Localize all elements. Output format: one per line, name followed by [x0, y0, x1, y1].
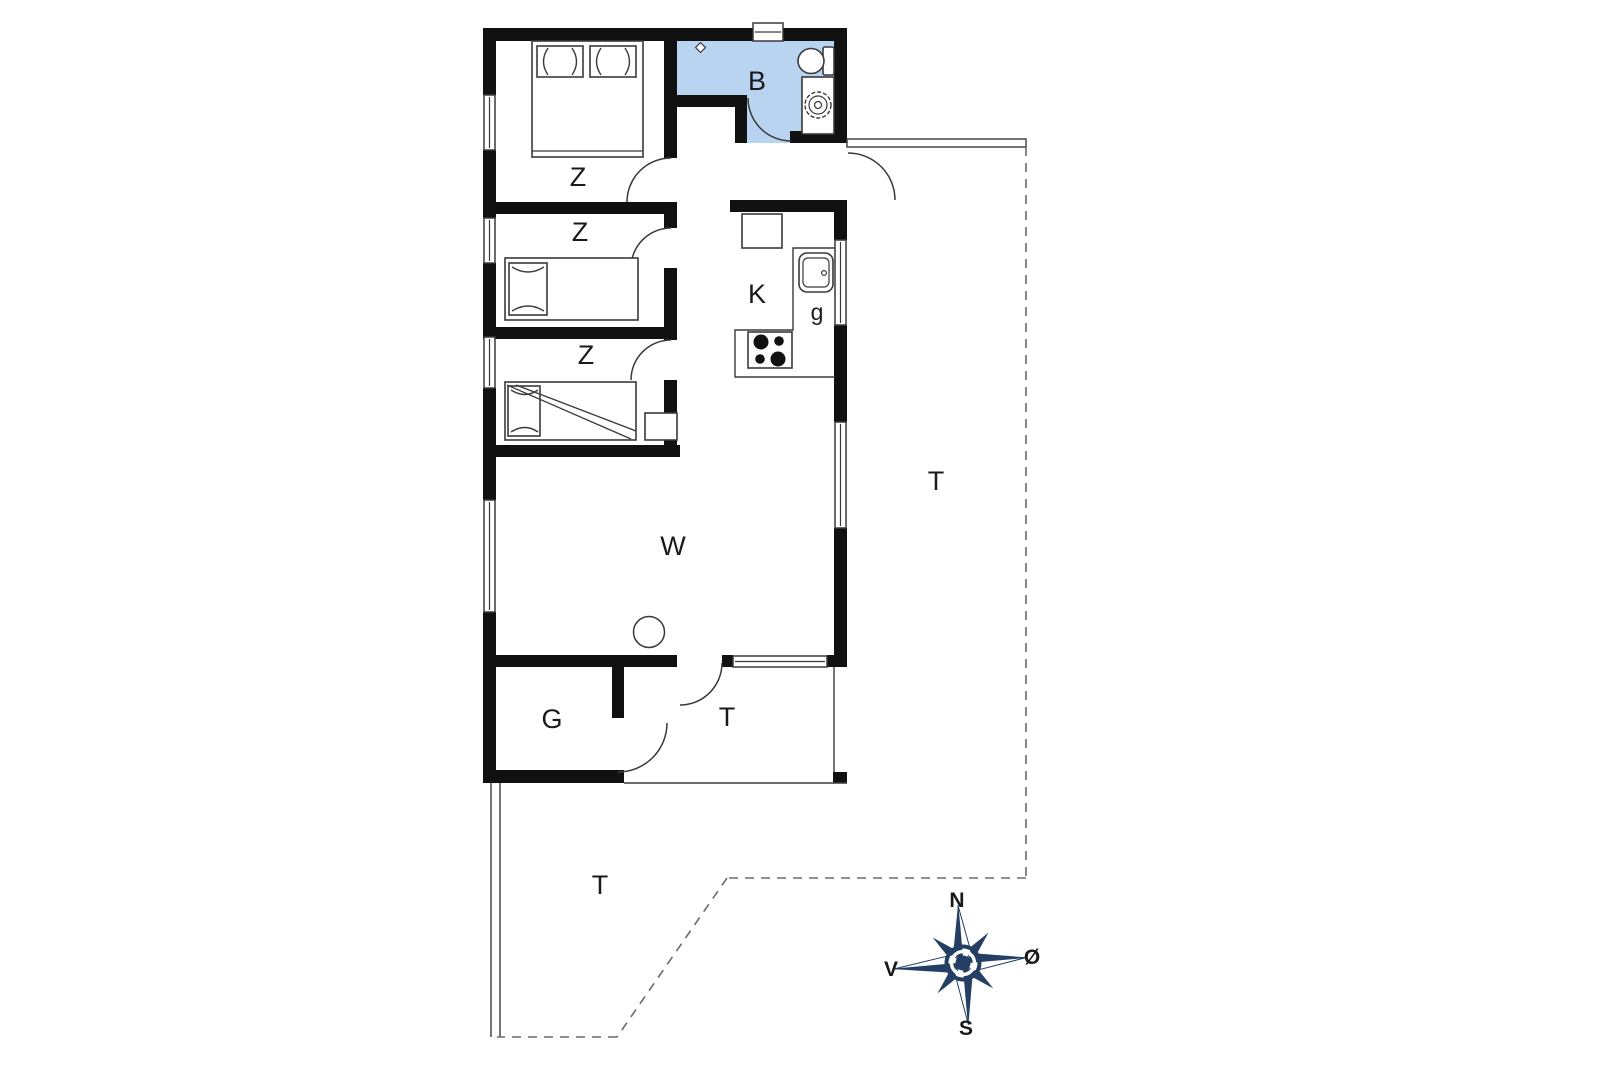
- pillow: [508, 386, 540, 436]
- wall-right: [834, 28, 847, 143]
- kitchen-cabinet: [742, 214, 782, 248]
- wall-top: [483, 28, 753, 41]
- label-bedroom3: Z: [578, 340, 595, 370]
- window-living-east: [835, 422, 846, 528]
- wall-left: [483, 612, 496, 783]
- door-bedroom3: [631, 340, 671, 380]
- label-terrace-inner: T: [719, 702, 736, 732]
- wall-bath-bottom-left: [664, 95, 737, 107]
- terrace-post: [833, 772, 847, 783]
- label-bedroom1: Z: [570, 162, 587, 192]
- compass-label-east: Ø: [1024, 946, 1040, 969]
- kitchen-sink: [799, 253, 833, 292]
- stove-burner: [754, 335, 769, 350]
- door-entrance-east: [848, 153, 895, 200]
- window-bathroom: [753, 23, 783, 41]
- window-bedroom1: [484, 95, 495, 150]
- wall-corner-post: [827, 655, 847, 667]
- boundary-diagonal: [617, 878, 727, 1037]
- compass-label-north: N: [949, 889, 964, 912]
- door-storage: [618, 723, 667, 772]
- door-living-terrace: [680, 663, 722, 705]
- label-kitchen-sink: g: [811, 299, 824, 325]
- wall-bed2-bed3: [483, 327, 677, 339]
- wall-right: [834, 528, 847, 667]
- window-bedroom2: [484, 218, 495, 263]
- window-living: [484, 500, 495, 612]
- terrace-east-edge: [847, 139, 1026, 147]
- door-bedroom1: [627, 158, 671, 202]
- stove-burner: [774, 336, 784, 346]
- label-terrace-south: T: [592, 870, 609, 900]
- wall-bath-jog: [735, 95, 747, 143]
- wall-living-bottom: [483, 655, 677, 667]
- wall-left: [483, 263, 496, 337]
- wall-bed3-living: [483, 445, 680, 457]
- toilet-bowl: [798, 49, 824, 74]
- compass-rose: N S V Ø: [884, 889, 1040, 1040]
- stove: [748, 332, 792, 368]
- wall-storage-right: [612, 655, 624, 718]
- wall-left: [483, 388, 496, 500]
- bedroom-furniture: [505, 41, 677, 440]
- label-storage: G: [541, 704, 562, 734]
- label-living-room: W: [660, 531, 686, 561]
- pillow: [509, 263, 547, 315]
- label-bathroom: B: [748, 66, 766, 96]
- wall-right: [834, 325, 847, 422]
- wall-bed1-bed2: [483, 202, 677, 214]
- label-bedroom2: Z: [572, 217, 589, 247]
- nightstand: [645, 413, 677, 440]
- floorplan-drawing: Z Z Z B K g W G T T T: [0, 0, 1600, 1067]
- wall-kitchen-top: [730, 200, 847, 212]
- wall-living-bottom-stub: [722, 655, 733, 667]
- stove-burner: [771, 352, 786, 367]
- compass-label-west: V: [884, 958, 898, 981]
- window-bedroom3: [484, 337, 495, 388]
- label-kitchen: K: [748, 279, 766, 309]
- window-terrace: [733, 656, 827, 667]
- stove-burner: [755, 354, 765, 364]
- compass-label-south: S: [959, 1017, 973, 1040]
- wood-stove: [634, 617, 665, 648]
- label-terrace-east: T: [928, 466, 945, 496]
- window-kitchen: [835, 240, 846, 325]
- wall-storage-bottom: [483, 770, 624, 783]
- wall-bedrooms-right: [664, 268, 677, 340]
- wall-bedrooms-right: [664, 202, 677, 228]
- floorplan-page: Z Z Z B K g W G T T T: [0, 0, 1600, 1067]
